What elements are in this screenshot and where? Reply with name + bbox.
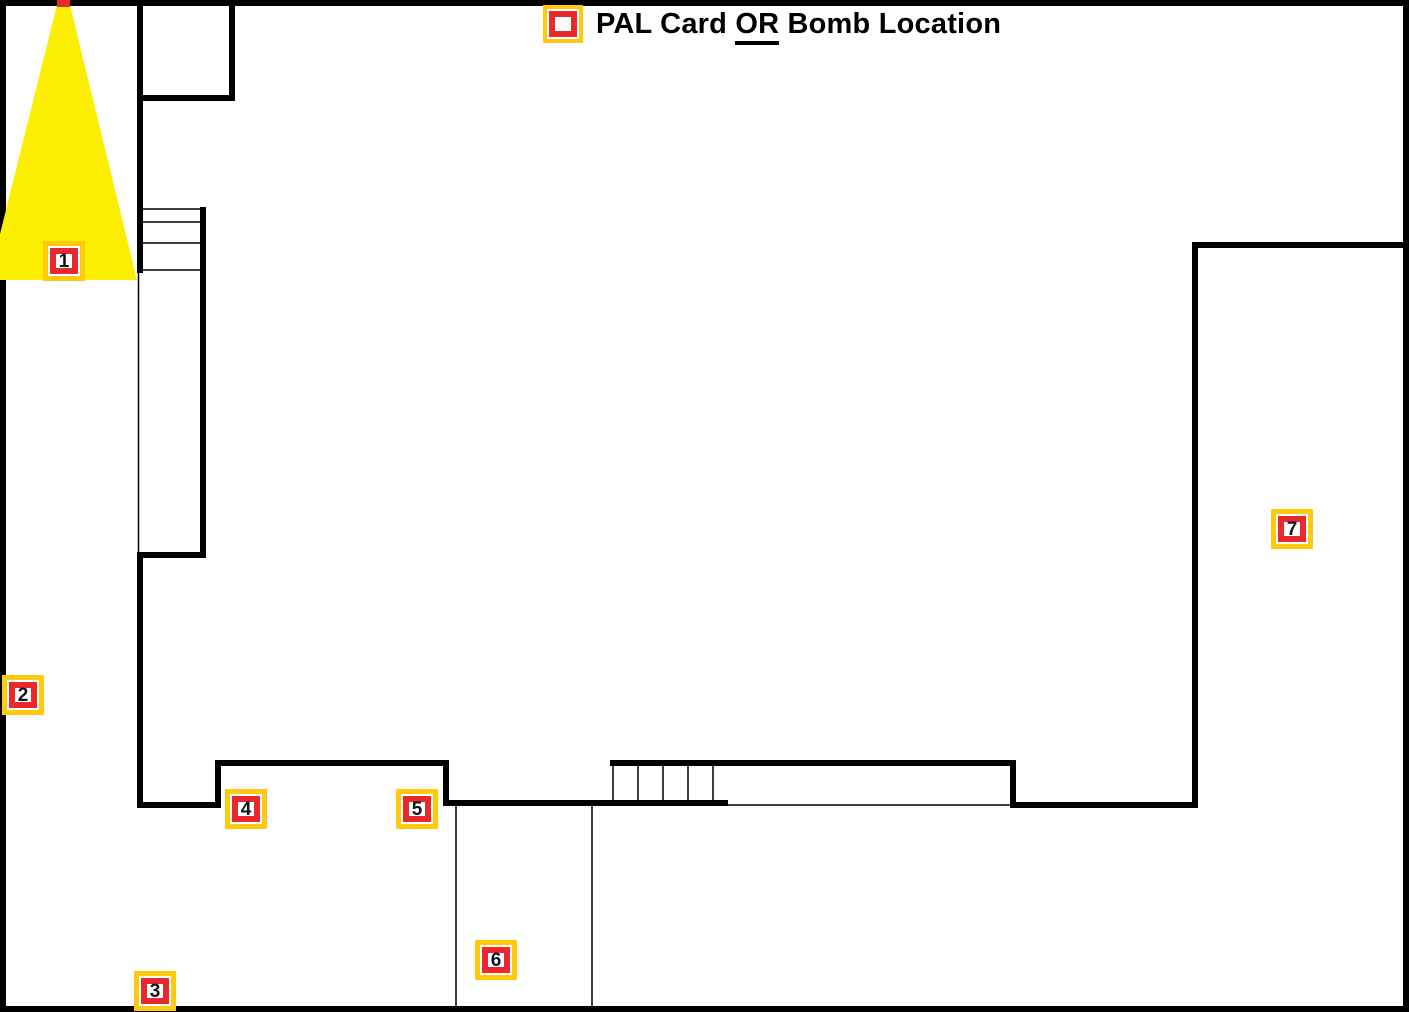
marker-number: 7 xyxy=(1284,522,1300,536)
spotlight-source-dot xyxy=(57,0,70,7)
legend-text-before: PAL Card xyxy=(596,8,727,40)
location-marker-6: 6 xyxy=(475,940,517,980)
marker-number: 1 xyxy=(56,254,72,268)
floor-plan-map: PAL Card OR Bomb Location 1 2 3 4 xyxy=(0,0,1409,1012)
location-marker-7: 7 xyxy=(1271,509,1313,549)
marker-number: 6 xyxy=(488,953,504,967)
marker-number: 3 xyxy=(147,984,163,998)
spotlight-cone xyxy=(0,5,137,280)
location-marker-1: 1 xyxy=(43,241,85,281)
legend-label: PAL Card OR Bomb Location xyxy=(596,8,1001,41)
location-marker-3: 3 xyxy=(134,971,176,1011)
marker-number: 5 xyxy=(409,802,425,816)
marker-number: 2 xyxy=(15,688,31,702)
walls-thin xyxy=(139,209,1015,1006)
legend-text-after: Bomb Location xyxy=(788,8,1002,40)
legend-icon-center xyxy=(555,17,571,31)
location-marker-5: 5 xyxy=(396,789,438,829)
marker-number: 4 xyxy=(238,802,254,816)
legend: PAL Card OR Bomb Location xyxy=(543,4,1001,44)
location-marker-2: 2 xyxy=(2,675,44,715)
pal-bomb-marker-icon xyxy=(543,5,583,43)
legend-text-or: OR xyxy=(735,8,779,45)
location-marker-4: 4 xyxy=(225,789,267,829)
floor-plan-drawing xyxy=(0,0,1409,1012)
walls-thick xyxy=(137,3,1406,808)
